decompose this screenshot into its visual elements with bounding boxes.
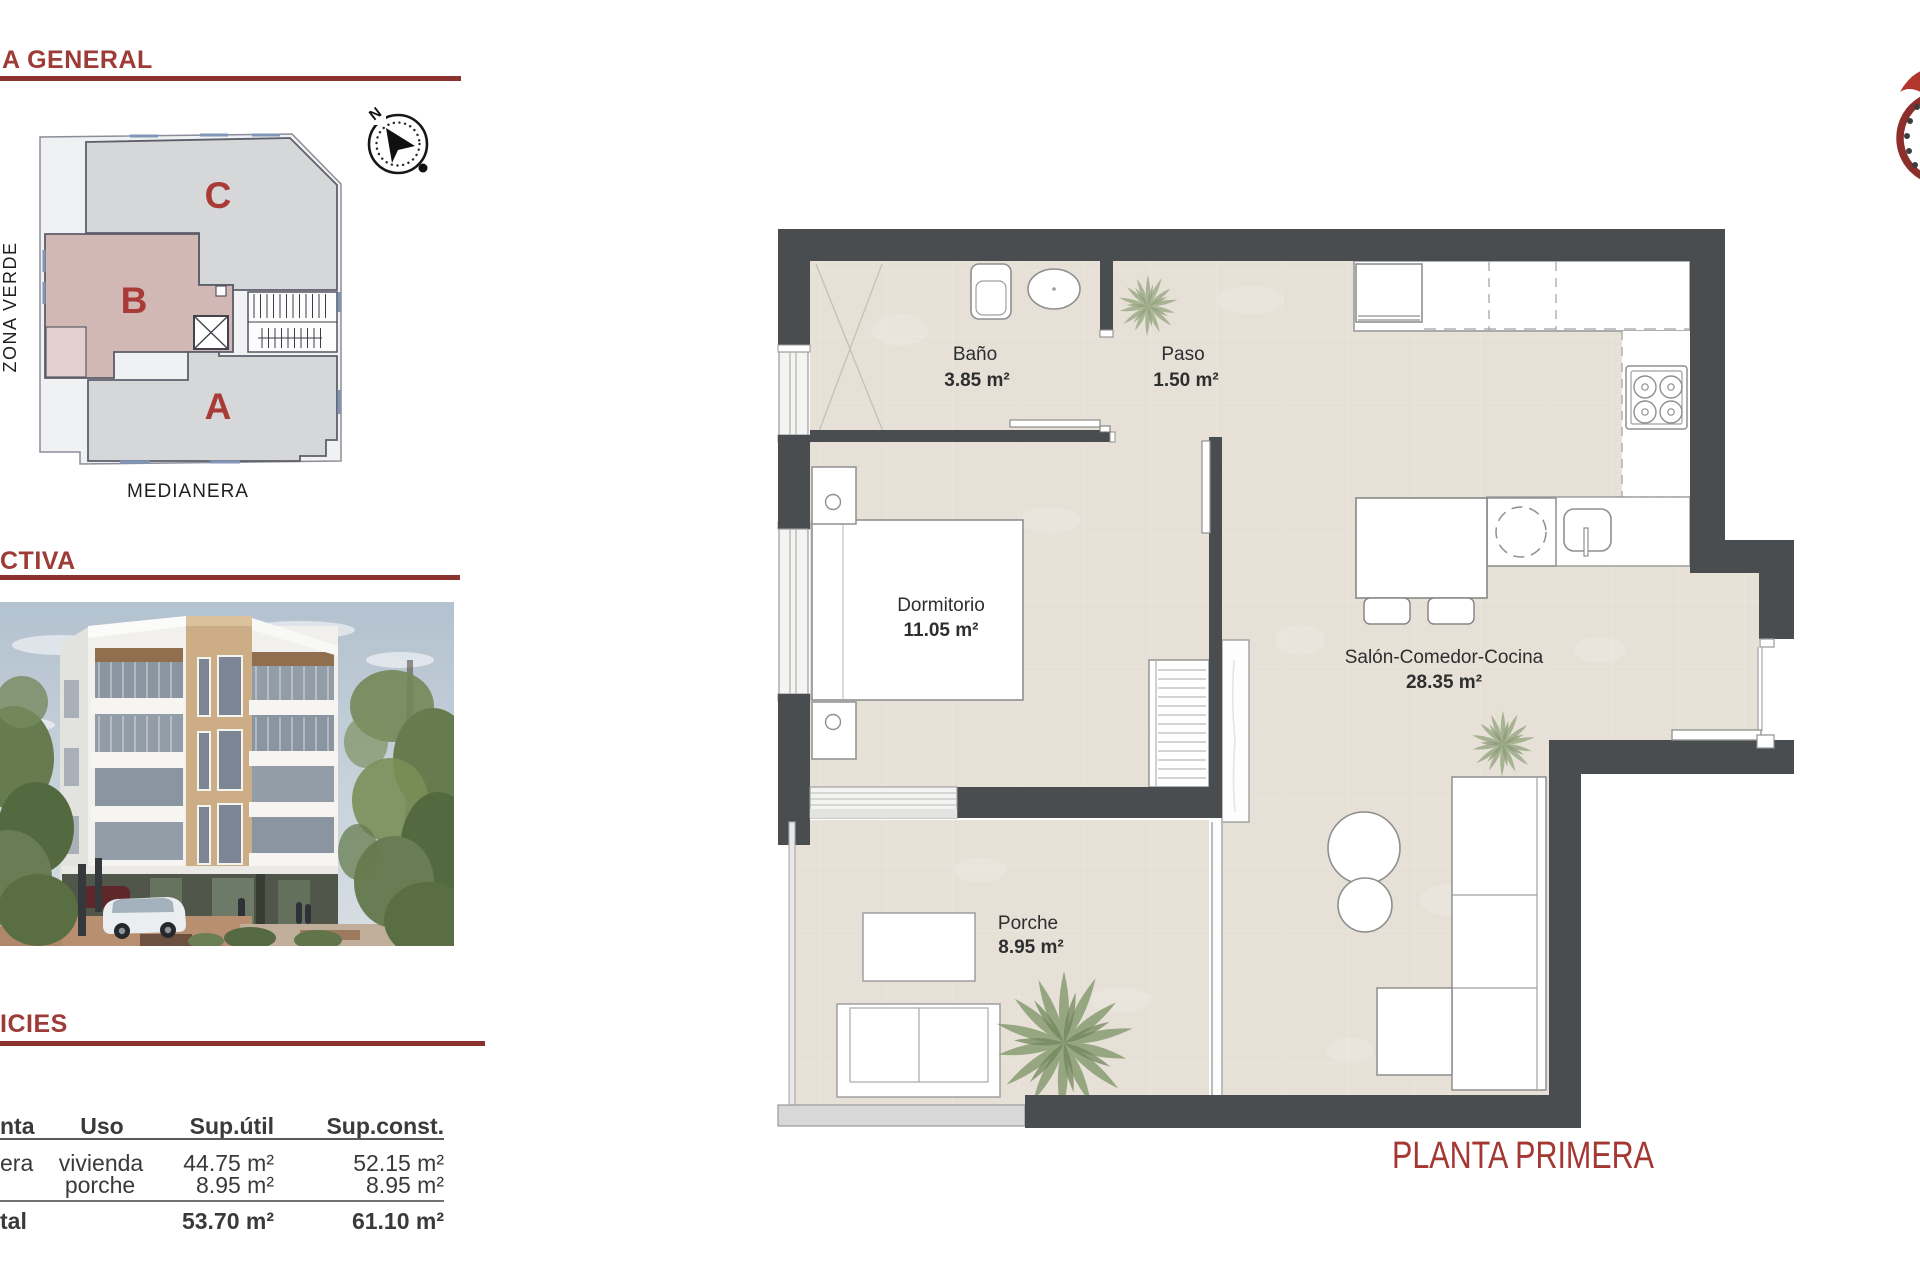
svg-text:Dormitorio: Dormitorio [897, 595, 985, 616]
svg-text:A: A [205, 386, 232, 427]
svg-text:B: B [121, 280, 148, 321]
svg-text:28.35 m²: 28.35 m² [1406, 672, 1482, 693]
svg-text:Paso: Paso [1161, 344, 1204, 365]
svg-text:ZONA VERDE: ZONA VERDE [0, 241, 20, 372]
svg-text:1.50 m²: 1.50 m² [1153, 370, 1218, 391]
svg-text:C: C [205, 175, 232, 216]
svg-text:PLANTA PRIMERA: PLANTA PRIMERA [1392, 1135, 1655, 1177]
svg-text:MEDIANERA: MEDIANERA [127, 481, 249, 502]
svg-text:11.05 m²: 11.05 m² [904, 620, 979, 641]
svg-text:3.85 m²: 3.85 m² [944, 370, 1009, 391]
svg-text:8.95 m²: 8.95 m² [998, 937, 1063, 958]
svg-text:Baño: Baño [953, 344, 997, 365]
svg-text:Porche: Porche [998, 913, 1058, 934]
svg-text:Salón-Comedor-Cocina: Salón-Comedor-Cocina [1345, 647, 1544, 668]
